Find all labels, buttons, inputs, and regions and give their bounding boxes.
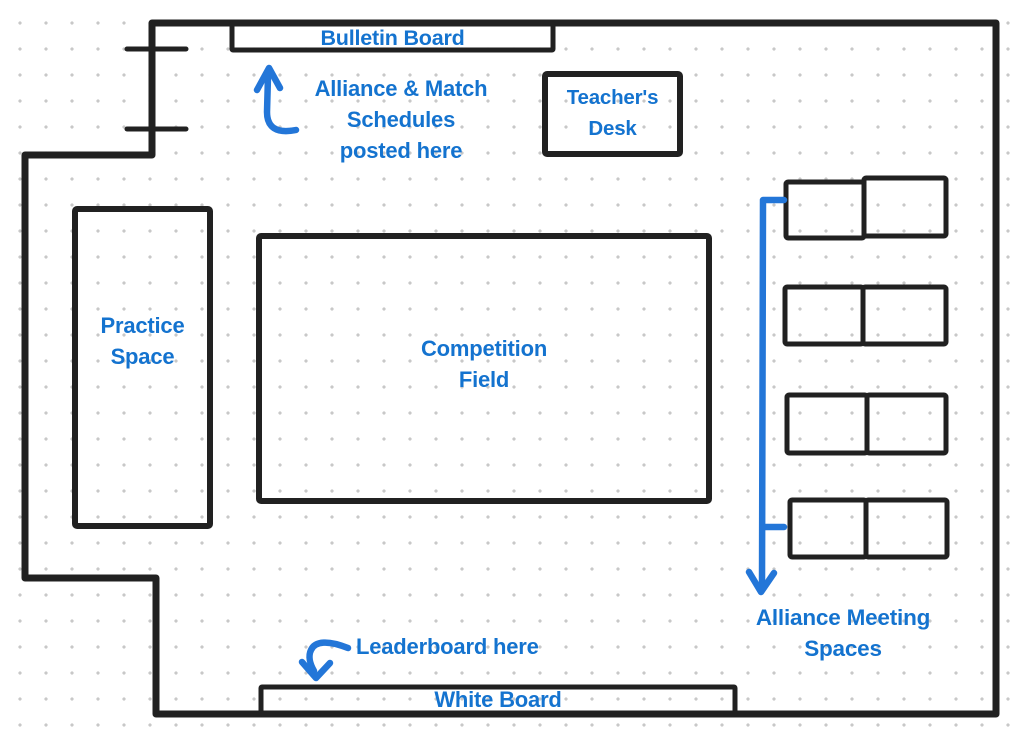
schedules-note-label: Alliance & Match Schedules posted here: [294, 73, 508, 166]
practice-space-line: Space: [75, 341, 210, 372]
table: [790, 500, 866, 557]
schedules-note-line: posted here: [294, 135, 508, 166]
white-board-label: White Board: [261, 686, 735, 714]
table: [787, 395, 867, 453]
table: [863, 287, 946, 344]
competition-field-line: Competition: [259, 333, 709, 364]
schedules-note-line: Alliance & Match: [294, 73, 508, 104]
leaderboard-note-label: Leaderboard here: [356, 634, 539, 660]
competition-field-label: Competition Field: [259, 333, 709, 395]
down-arrow-long-icon: [749, 200, 784, 592]
alliance-table-pair-3: [787, 395, 946, 453]
alliance-table-pair-2: [785, 287, 946, 344]
bulletin-board-label: Bulletin Board: [232, 25, 553, 51]
alliance-meeting-line: Spaces: [717, 633, 969, 664]
table: [785, 287, 863, 344]
alliance-table-pair-4: [790, 500, 947, 557]
table: [864, 178, 946, 236]
teachers-desk-line: Teacher's: [545, 82, 680, 113]
alliance-meeting-line: Alliance Meeting: [717, 602, 969, 633]
alliance-meeting-label: Alliance Meeting Spaces: [717, 602, 969, 664]
down-arrow-curved-icon: [302, 643, 348, 678]
up-arrow-icon: [257, 68, 296, 131]
teachers-desk-label: Teacher's Desk: [545, 82, 680, 144]
alliance-table-pair-1: [786, 178, 946, 238]
table: [786, 182, 864, 238]
competition-field-line: Field: [259, 364, 709, 395]
schedules-note-line: Schedules: [294, 104, 508, 135]
classroom-floor-plan: Bulletin Board Alliance & Match Schedule…: [0, 0, 1018, 736]
table: [867, 395, 946, 453]
teachers-desk-line: Desk: [545, 113, 680, 144]
practice-space-line: Practice: [75, 310, 210, 341]
practice-space-label: Practice Space: [75, 310, 210, 372]
table: [866, 500, 947, 557]
